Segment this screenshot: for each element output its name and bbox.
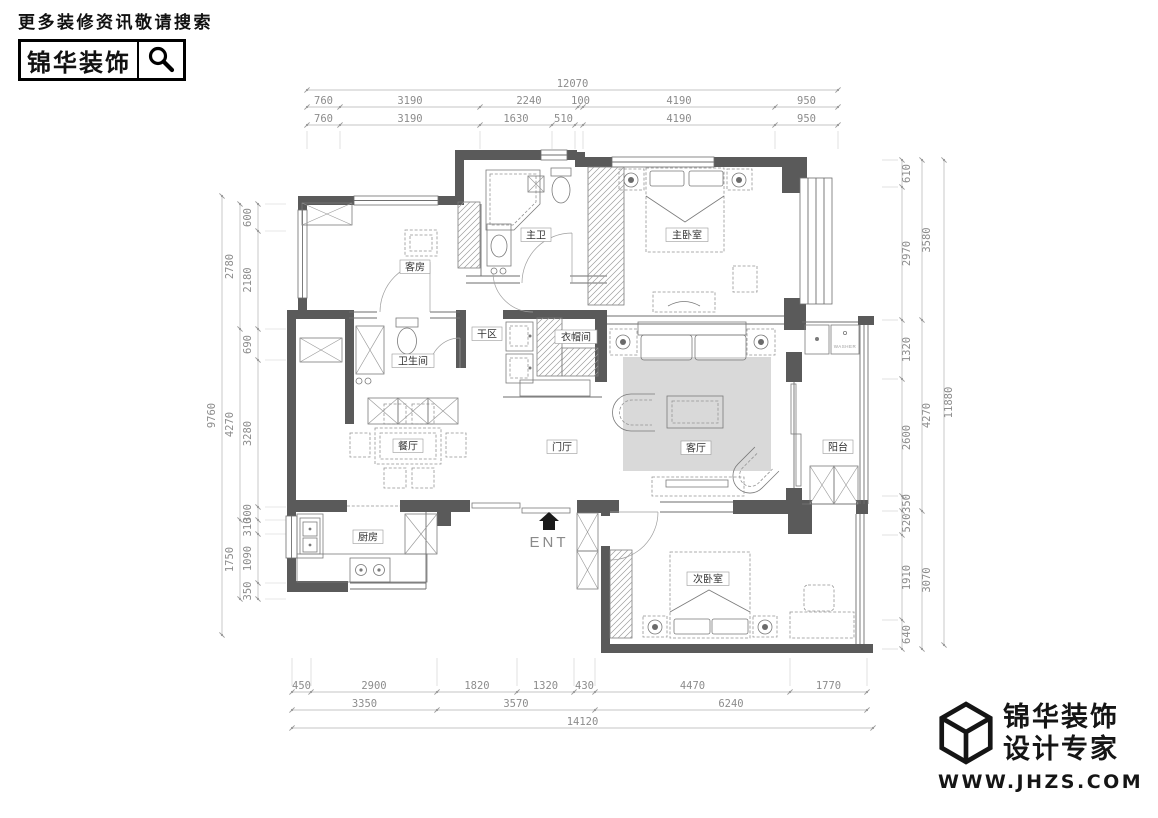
dim-row: 760319022401004190950 [304,95,840,110]
search-icon [139,42,183,78]
cube-logo-icon [938,700,994,766]
dim-label: 640 [901,625,913,644]
dim-label: 520 [901,514,913,533]
dim-label: 950 [797,113,816,125]
dim-label: 4270 [224,412,236,437]
room-label-kitchen: 厨房 [353,530,383,544]
room-label-text: 卫生间 [398,355,428,368]
dim-label: 3070 [921,567,933,592]
dim-label: 3580 [921,227,933,252]
header-tagline: 更多装修资讯敬请搜索 [18,8,213,33]
dim-row: 12070 [304,78,840,93]
dim-row: 14120 [289,716,875,731]
room-label-text: 门厅 [552,441,572,454]
dim-column: 278042701750 [224,201,243,601]
dim-label: 760 [314,95,333,107]
footer-brand-line1: 锦华装饰 [1003,701,1119,733]
entry-label: ENT [530,534,569,551]
dim-label: 1750 [224,547,236,572]
dim-column: 358042703070 [919,157,933,651]
washer-label: WASHER [834,344,857,349]
dim-label: 760 [314,113,333,125]
room-label-text: 客房 [405,261,425,274]
plan-drawing: WASHER [286,150,874,653]
dim-label: 2780 [224,254,236,279]
dim-label: 350 [901,494,913,513]
room-label-dining: 餐厅 [393,439,423,453]
dim-label: 690 [242,335,254,354]
room-label-text: 干区 [477,329,497,341]
floor-plan: 1207076031902240100419095076031901630510… [0,0,1158,818]
dim-column: 600218069032803003101090350 [242,201,286,601]
dim-row: 45029001820132043044701770 [289,658,869,695]
dim-label: 2600 [901,425,913,450]
room-label-text: 厨房 [358,531,378,544]
footer-brand-line2: 设计专家 [1003,733,1119,765]
dim-row: 760319016305104190950 [304,113,840,149]
room-label-text: 主卫 [526,230,546,242]
dim-label: 6240 [718,698,743,710]
dim-label: 1910 [901,565,913,590]
header: 更多装修资讯敬请搜索 锦华装饰 [18,8,213,81]
dimension-lines: 1207076031902240100419095076031901630510… [206,78,955,731]
dim-label: 1090 [242,546,254,571]
brand-name: 锦华装饰 [21,42,139,78]
entry-house-icon [539,512,559,530]
brand-box: 锦华装饰 [18,39,186,81]
dim-row: 335035706240 [289,698,869,713]
entry-marker: ENT [530,512,569,551]
dim-label: 3190 [397,113,422,125]
room-balcony: WASHER [805,325,859,354]
room-label-second-bedroom: 次卧室 [687,572,729,586]
dim-label: 350 [242,582,254,601]
dim-label: 1820 [464,680,489,692]
dim-label: 3190 [397,95,422,107]
footer: 锦华装饰 设计专家 WWW.JHZS.COM [938,700,1152,793]
dim-label: 4190 [666,113,691,125]
dim-label: 14120 [567,716,599,728]
room-label-master-bedroom: 主卧室 [666,228,708,242]
dim-label: 610 [901,164,913,183]
room-label-bathroom: 卫生间 [392,354,434,368]
dim-label: 100 [571,95,590,107]
dim-label: 600 [242,208,254,227]
room-label-text: 客厅 [686,442,706,455]
dim-column: 6102970132026003505201910640 [882,157,913,651]
room-label-text: 次卧室 [693,573,723,586]
dim-column: 9760 [206,193,225,637]
room-guest [405,230,437,256]
dim-label: 4270 [921,403,933,428]
dim-label: 1630 [503,113,528,125]
dim-label: 1320 [901,337,913,362]
dim-label: 3280 [242,421,254,446]
room-label-text: 阳台 [828,441,848,454]
dim-label: 3570 [503,698,528,710]
dim-label: 2970 [901,241,913,266]
room-label-balcony: 阳台 [823,440,853,454]
footer-website: WWW.JHZS.COM [938,771,1152,793]
dim-label: 4190 [666,95,691,107]
room-second-bedroom [643,552,854,638]
room-label-text: 衣帽间 [561,331,591,344]
dim-label: 1770 [816,680,841,692]
room-label-dry-area: 干区 [472,327,502,341]
dim-label: 310 [242,518,254,537]
dim-label: 11880 [943,387,955,419]
dim-label: 450 [292,680,311,692]
room-label-cloakroom: 衣帽间 [555,330,597,344]
dim-label: 2180 [242,267,254,292]
dim-column: 11880 [941,157,955,647]
room-label-master-bath: 主卫 [521,228,551,242]
room-label-living: 客厅 [681,441,711,455]
dim-label: 4470 [680,680,705,692]
room-kitchen [297,514,427,582]
room-label-text: 餐厅 [398,440,418,453]
dim-label: 430 [575,680,594,692]
dim-label: 12070 [557,78,589,90]
dim-label: 3350 [352,698,377,710]
dim-label: 2900 [361,680,386,692]
walls [287,150,874,653]
dim-label: 2240 [516,95,541,107]
dim-label: 510 [554,113,573,125]
room-label-foyer: 门厅 [547,440,577,454]
dim-label: 950 [797,95,816,107]
room-label-text: 主卧室 [672,229,702,242]
dim-label: 9760 [206,403,218,428]
crossed-cabinets [300,176,858,589]
dim-label: 1320 [533,680,558,692]
room-label-guest: 客房 [400,260,430,274]
